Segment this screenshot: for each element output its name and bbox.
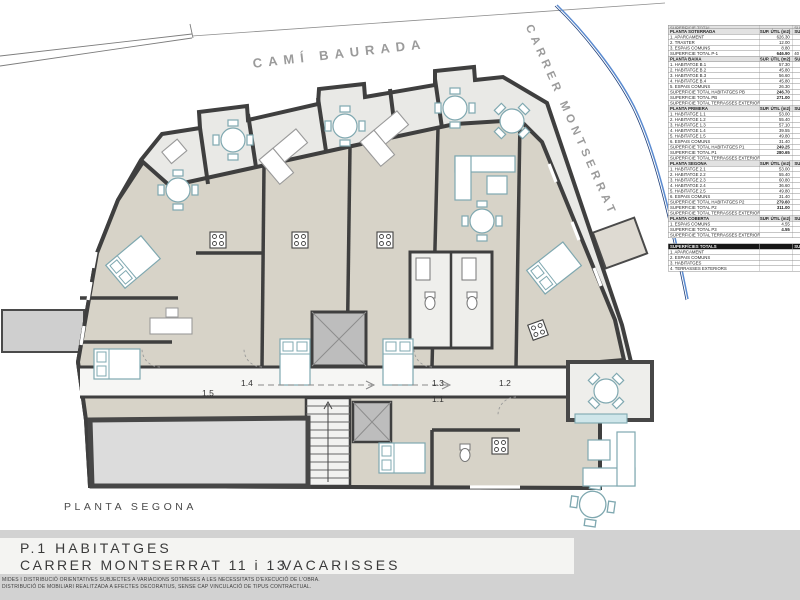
area-table-cell: SUP. ÚTIL (m2) — [759, 161, 792, 166]
area-table-cell: 2. HABITATGE B.2 — [669, 68, 760, 73]
area-table-cell: SUP. ÚTIL (m2) — [759, 106, 792, 111]
area-table-cell: SUP. CONSTRUÏDA (m2) — [792, 106, 800, 111]
area-table-cell — [760, 250, 792, 255]
area-table-cell: 271.00 — [760, 95, 792, 100]
area-table-cell: 249.25 — [760, 145, 792, 150]
area-table-cell: 4. TERRASSES EXTERIORS — [669, 266, 760, 271]
toilet-icon — [460, 444, 470, 462]
area-table-cell — [792, 128, 800, 133]
area-table-cell — [792, 117, 800, 122]
disclaimer-line-1: MIDES I DISTRIBUCIÓ ORIENTATIVES SUBJECT… — [2, 577, 320, 583]
elevator-2 — [353, 402, 391, 442]
area-table-cell: SUPERFICIE TOTAL TERRASSES EXTERIORS P3 — [669, 233, 760, 238]
door-label-1-2: 1.2 — [499, 378, 511, 388]
area-table-section: PLANTA BAIXASUP. ÚTIL (m2)SUP. CONSTRUÏD… — [668, 56, 800, 106]
area-table-section: PLANTA SOTERRADASUP. ÚTIL (m2)SUP. CONST… — [668, 29, 800, 57]
bed-icon — [379, 443, 425, 473]
area-table-cell: 279.60 — [760, 200, 792, 205]
area-table-section: PLANTA COBERTASUP. ÚTIL (m2)SUP. CONSTRU… — [668, 216, 800, 239]
area-table-cell: 6. ESPAIS COMUNS — [669, 139, 760, 144]
area-table-cell — [792, 68, 800, 73]
area-table-cell: 40 — [792, 51, 800, 56]
area-table-cell: 60.80 — [760, 178, 792, 183]
area-table-cell: 5. HABITATGE 2.5 — [669, 189, 760, 194]
area-table-cell: SUPERFICIE TOTAL P1 — [669, 150, 760, 155]
area-table-cell: 646.90 — [760, 51, 792, 56]
area-table-cell: 45.80 — [760, 68, 792, 73]
area-table-cell — [792, 222, 800, 227]
sideboard-icon — [575, 414, 627, 423]
area-table-cell: 4. HABITATGE B.4 — [669, 79, 760, 84]
toilet-icon — [467, 292, 477, 310]
area-table-cell: SUP. CONSTRUÏDA (m2) — [792, 57, 800, 62]
area-table-cell — [760, 101, 792, 106]
area-table-cell: 57.30 — [760, 62, 792, 67]
area-table-cell: 3. HABITATGE 1.3 — [669, 123, 760, 128]
area-table-cell — [760, 244, 792, 249]
area-table-cell: SUPERFICIE TOTAL TERRASSES EXTERIORS P1 — [669, 156, 760, 161]
area-table-cell: SUPERFICIE TOTAL P3 — [669, 227, 760, 232]
area-table-cell: 4. HABITATGE 1.4 — [669, 128, 760, 133]
stove-icon — [377, 232, 393, 248]
area-table-cell: 1. APARCAMENT — [669, 250, 760, 255]
area-table-cell — [792, 255, 800, 260]
bed-icon — [94, 349, 140, 379]
area-table-cell: 4.55 — [760, 222, 792, 227]
area-table-cell: PLANTA PRIMERA — [669, 106, 760, 111]
areas-table: SUPERFICIE TOTALSUP. CONSTRUÏDAPLANTA SO… — [668, 26, 800, 518]
area-table-cell: 2. HABITATGE 1.2 — [669, 117, 760, 122]
area-table-cell: 31.40 — [760, 194, 792, 199]
area-table-cell: 1. HABITATGE 1.1 — [669, 112, 760, 117]
area-table-cell — [792, 172, 800, 177]
area-table-cell: SUPERFICIE TOTAL TERRASSES EXTERIORS PB — [669, 101, 760, 106]
area-table-cell: SUPERFICIE TOTAL HABITATGES P1 — [669, 145, 760, 150]
sofa-icon — [583, 432, 635, 486]
area-table-cell — [792, 167, 800, 172]
area-table-cell: 6. ESPAIS COMUNS — [669, 194, 760, 199]
area-table-cell — [792, 40, 800, 45]
area-table-cell: 1. ESPAIS COMUNS — [669, 222, 760, 227]
area-table-section: PLANTA PRIMERASUP. ÚTIL (m2)SUP. CONSTRU… — [668, 106, 800, 162]
area-table-section: SUPERFÍCIES TOTALSSUP. CONSTRUÏDA (m2)1.… — [668, 244, 800, 272]
area-table-cell — [792, 183, 800, 188]
stove-icon — [492, 438, 508, 454]
area-table-cell: 55.40 — [760, 117, 792, 122]
area-table-cell: PLANTA COBERTA — [669, 216, 760, 221]
plan-label: PLANTA SEGONA — [64, 501, 197, 513]
area-table-cell: 3. ESPAIS COMUNS — [669, 46, 760, 51]
area-table-cell — [792, 145, 800, 150]
area-table-cell: 31.40 — [760, 139, 792, 144]
area-table-cell: SUP. CONSTRUÏDA (m2) — [792, 161, 800, 166]
area-table-cell — [760, 266, 792, 271]
area-table-cell: SUP. ÚTIL (m2) — [759, 29, 792, 34]
door-label-1-3: 1.3 — [432, 378, 444, 388]
area-table-cell — [792, 134, 800, 139]
area-table-cell: 5. ESPAIS COMUNS — [669, 84, 760, 89]
area-table-cell — [792, 211, 800, 216]
area-table-cell: 36.60 — [760, 183, 792, 188]
area-table-cell — [792, 46, 800, 51]
area-table-cell: 1. HABITATGE 2.1 — [669, 167, 760, 172]
left-balcony — [2, 310, 84, 352]
area-table-cell: SUP. ÚTIL (m2) — [759, 57, 792, 62]
project-address: CARRER MONTSERRAT 11 i 13 — [20, 557, 287, 573]
area-table-cell: SUP. CONSTRUÏDA (m2) — [792, 29, 800, 34]
area-table-cell: 1. APARCAMENT — [669, 35, 760, 40]
area-table-cell: 45.80 — [760, 79, 792, 84]
right-terrace — [568, 362, 652, 420]
area-table-cell: SUP. ÚTIL (m2) — [759, 216, 792, 221]
area-table-cell — [792, 227, 800, 232]
area-table-cell — [792, 123, 800, 128]
area-table-cell — [760, 156, 792, 161]
area-table-cell: 55.40 — [760, 172, 792, 177]
area-table-cell: 3. HABITATGES — [669, 261, 760, 266]
area-table-cell — [792, 73, 800, 78]
door-label-1-1: 1.1 — [432, 394, 444, 404]
drawing-sheet: CAMÍ BAURADA CARRER MONTSERRAT — [0, 0, 800, 600]
area-table-cell: SUPERFÍCIES TOTALS — [669, 244, 760, 249]
area-table-cell — [792, 205, 800, 210]
area-table-cell — [792, 84, 800, 89]
bed-icon — [383, 339, 413, 385]
area-table-cell — [792, 90, 800, 95]
area-table-cell: 2. HABITATGE 2.2 — [669, 172, 760, 177]
bathroom-block — [410, 252, 492, 348]
area-table-cell: SUP. CONSTRUÏDA (m2) — [792, 216, 800, 221]
area-table-row: SUPERFICIE TOTAL TERRASSES EXTERIORS P3 — [668, 232, 800, 238]
staircase — [306, 398, 350, 486]
area-table-cell — [792, 266, 800, 271]
area-table-cell: 280.65 — [760, 150, 792, 155]
elevator-core — [312, 312, 366, 366]
area-table-cell: 49.80 — [760, 134, 792, 139]
area-table-cell — [792, 178, 800, 183]
bed-icon — [280, 339, 310, 385]
area-table-cell: 626.30 — [760, 35, 792, 40]
door-label-1-5: 1.5 — [202, 388, 214, 398]
area-table-row: 4. TERRASSES EXTERIORS — [668, 266, 800, 272]
area-table-cell — [792, 62, 800, 67]
area-table-cell — [792, 194, 800, 199]
area-table-cell — [792, 200, 800, 205]
area-table-cell: SUPERFICIE TOTAL HABITATGES P2 — [669, 200, 760, 205]
area-table-cell: 8.80 — [760, 46, 792, 51]
area-table-cell — [760, 261, 792, 266]
area-table-cell: 39.55 — [760, 128, 792, 133]
area-table-cell — [792, 261, 800, 266]
area-table-cell: 53.00 — [760, 167, 792, 172]
area-table-cell — [792, 112, 800, 117]
area-table-cell: 4.55 — [760, 227, 792, 232]
area-table-cell — [792, 95, 800, 100]
area-table-cell — [760, 211, 792, 216]
area-table-cell: 56.60 — [760, 73, 792, 78]
area-table-cell: 246.70 — [760, 90, 792, 95]
stove-icon — [292, 232, 308, 248]
area-table-section: PLANTA SEGONASUP. ÚTIL (m2)SUP. CONSTRUÏ… — [668, 161, 800, 217]
area-table-cell — [792, 150, 800, 155]
area-table-cell: SUPERFICIE TOTAL HABITATGES PB — [669, 90, 760, 95]
area-table-cell: 311.00 — [760, 205, 792, 210]
area-table-cell: SUPERFICIE TOTAL TERRASSES EXTERIORS P2 — [669, 211, 760, 216]
area-table-cell: 57.10 — [760, 123, 792, 128]
building-plan — [2, 67, 652, 529]
area-table-cell: 53.00 — [760, 112, 792, 117]
area-table-cell: 5. HABITATGE 1.5 — [669, 134, 760, 139]
area-table-cell: PLANTA BAIXA — [669, 57, 760, 62]
area-table-cell — [792, 156, 800, 161]
door-label-1-4: 1.4 — [241, 378, 253, 388]
area-table-cell — [760, 255, 792, 260]
area-table-cell — [760, 233, 792, 238]
area-table-cell — [792, 250, 800, 255]
area-table-cell: 12.00 — [760, 40, 792, 45]
area-table-cell: SUPERFICIE TOTAL PB — [669, 95, 760, 100]
area-table-cell: 3. HABITATGE B.3 — [669, 73, 760, 78]
bottom-terrace — [90, 418, 308, 486]
corridor — [80, 367, 598, 397]
project-title: P.1 HABITATGES — [20, 540, 172, 556]
toilet-icon — [425, 292, 435, 310]
area-table-cell: PLANTA SOTERRADA — [669, 29, 760, 34]
area-table-cell: SUP. CONSTRUÏDA (m2) — [792, 244, 800, 249]
disclaimer-line-2: DISTRIBUCIÓ DE MOBILIARI REALITZADA A EF… — [2, 584, 312, 590]
area-table-cell — [792, 79, 800, 84]
street-label-cami-baurada: CAMÍ BAURADA — [252, 36, 427, 71]
area-table-cell — [792, 101, 800, 106]
area-table-cell: PLANTA SEGONA — [669, 161, 760, 166]
area-table-cell: 4. HABITATGE 2.4 — [669, 183, 760, 188]
area-table-cell — [792, 139, 800, 144]
stove-icon — [210, 232, 226, 248]
area-table-cell: SUPERFICIE TOTAL P-1 — [669, 51, 760, 56]
area-table-cell: 1. HABITATGE B.1 — [669, 62, 760, 67]
area-table-cell — [792, 233, 800, 238]
area-table-cell: 2. ESPAIS COMUNS — [669, 255, 760, 260]
area-table-cell — [792, 35, 800, 40]
area-table-cell: 49.80 — [760, 189, 792, 194]
area-table-cell: 26.30 — [760, 84, 792, 89]
area-table-cell: SUPERFICIE TOTAL P2 — [669, 205, 760, 210]
area-table-cell — [792, 189, 800, 194]
project-town: VACARISSES — [282, 557, 400, 573]
area-table-cell: 2. TRASTER — [669, 40, 760, 45]
area-table-cell: 3. HABITATGE 2.3 — [669, 178, 760, 183]
